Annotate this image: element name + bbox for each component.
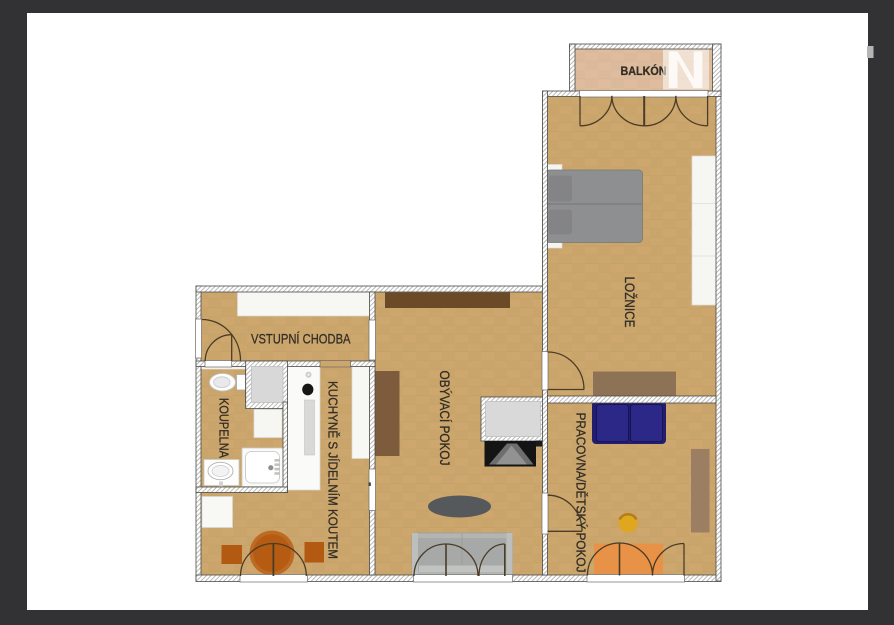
svg-text:VSTUPNÍ CHODBA: VSTUPNÍ CHODBA <box>251 331 351 347</box>
svg-text:PRACOVNA/DĚTSKÝ POKOJ: PRACOVNA/DĚTSKÝ POKOJ <box>574 413 589 573</box>
svg-text:OBÝVACÍ POKOJ: OBÝVACÍ POKOJ <box>437 371 452 466</box>
svg-text:BALKÓN: BALKÓN <box>621 63 667 78</box>
svg-text:LOŽNICE: LOŽNICE <box>622 277 637 328</box>
svg-text:KUCHYNĚ S JÍDELNÍM KOUTEM: KUCHYNĚ S JÍDELNÍM KOUTEM <box>326 381 341 559</box>
svg-text:KOUPELNA: KOUPELNA <box>217 398 232 458</box>
